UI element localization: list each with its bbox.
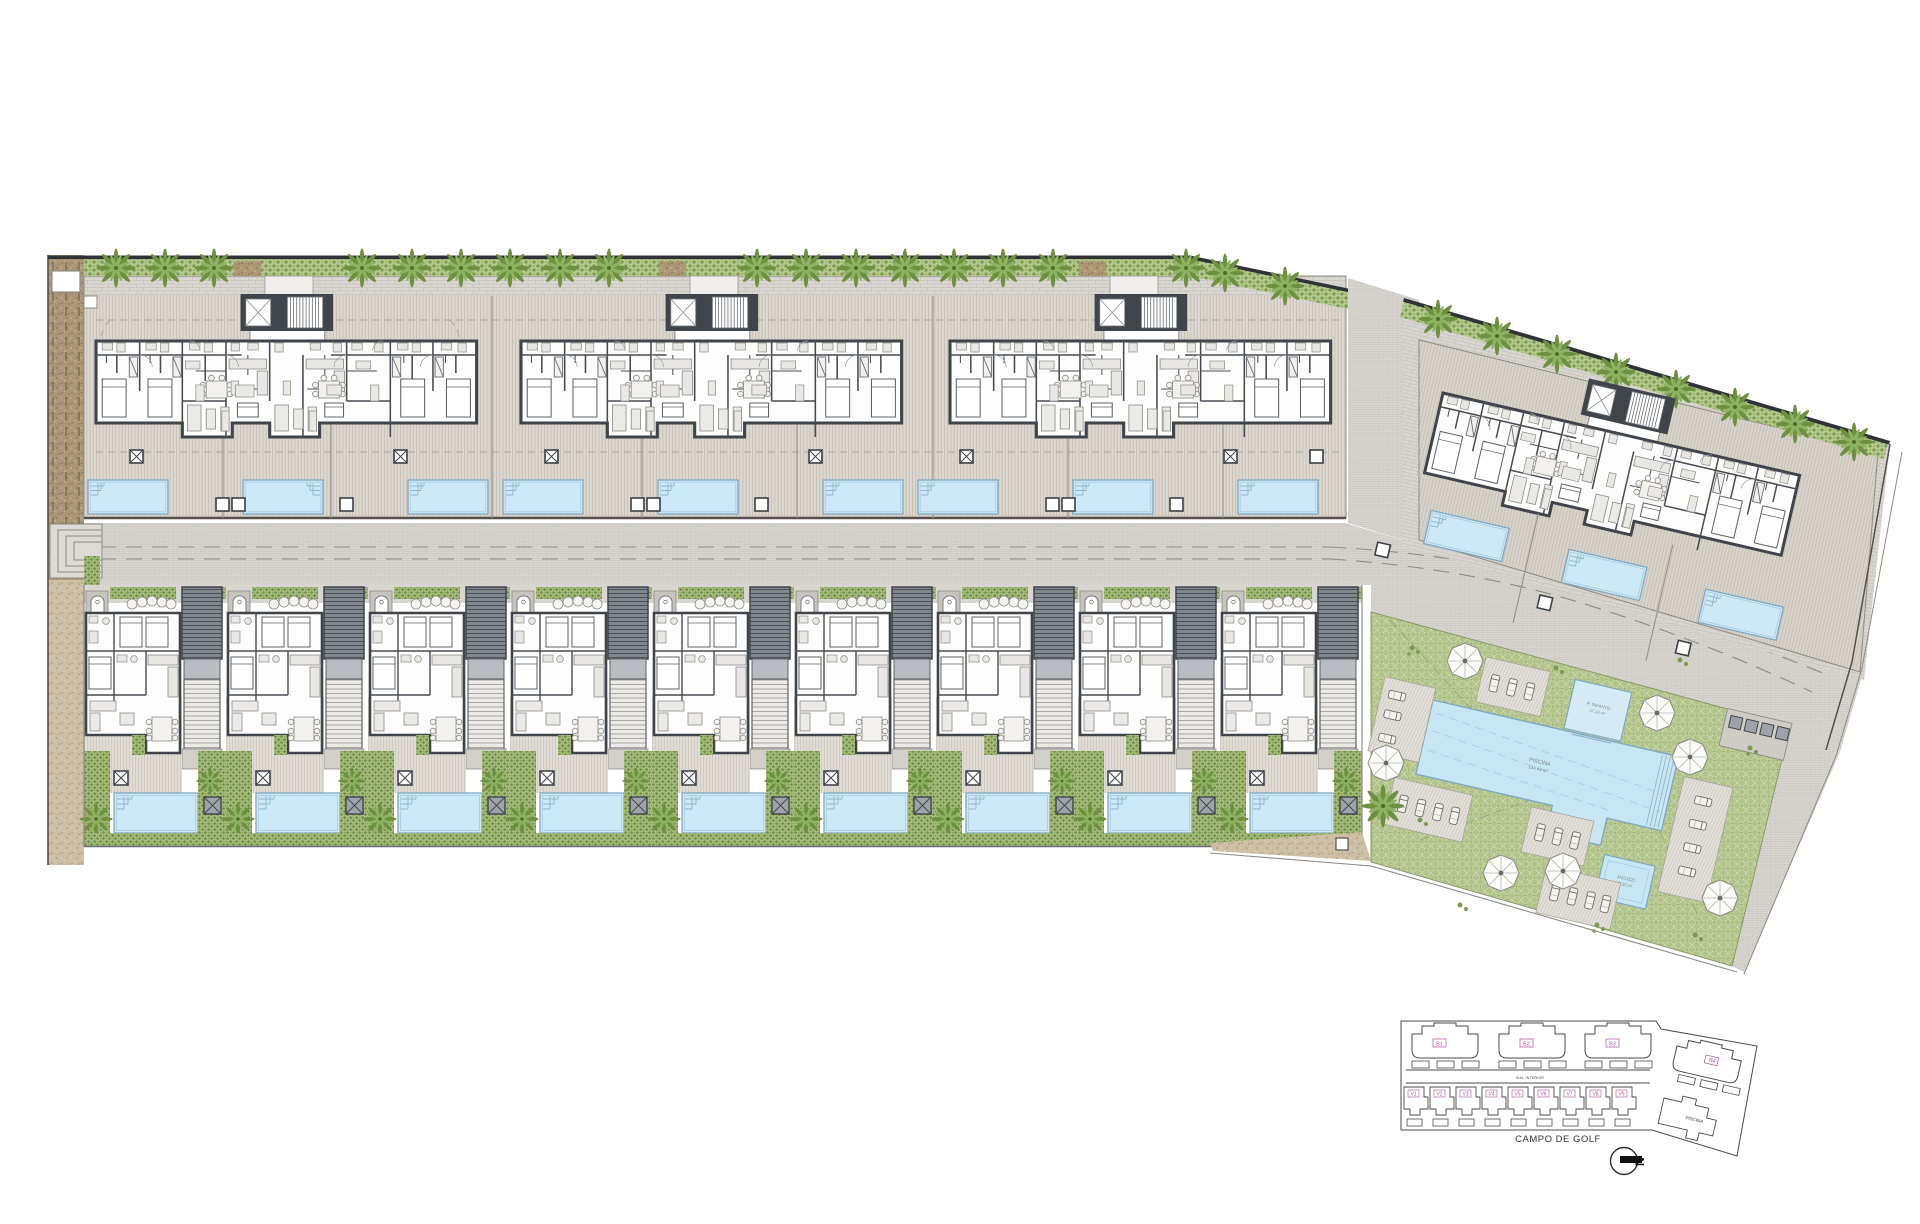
svg-text:V3: V3 — [1462, 1092, 1468, 1098]
svg-text:B1: B1 — [1436, 1042, 1443, 1048]
svg-text:B2: B2 — [1523, 1042, 1530, 1048]
svg-text:B3: B3 — [1609, 1042, 1616, 1048]
svg-text:V4: V4 — [1488, 1092, 1494, 1098]
svg-text:V2: V2 — [1436, 1092, 1442, 1098]
svg-text:N: N — [1633, 1157, 1647, 1166]
svg-text:V6: V6 — [1540, 1092, 1546, 1098]
svg-text:CAMPO DE GOLF: CAMPO DE GOLF — [1515, 1134, 1601, 1145]
svg-text:V1: V1 — [1410, 1092, 1416, 1098]
svg-text:V9: V9 — [1618, 1092, 1624, 1098]
svg-text:V5: V5 — [1514, 1092, 1520, 1098]
svg-text:V7: V7 — [1566, 1092, 1572, 1098]
svg-text:V8: V8 — [1592, 1092, 1598, 1098]
svg-text:VIAL INTERIOR: VIAL INTERIOR — [1516, 1076, 1545, 1080]
